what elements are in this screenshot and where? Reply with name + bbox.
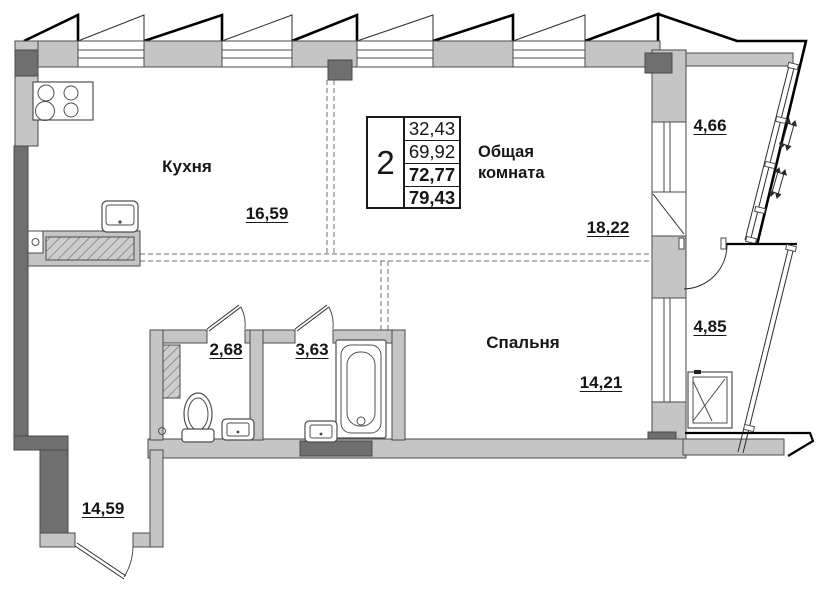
- bathroom-sink-icon: [305, 421, 337, 442]
- facade-sawtooth-windows: [24, 14, 658, 41]
- exterior-wall-top: [15, 41, 660, 80]
- room-area-balcony-upper: 4,66: [693, 116, 726, 136]
- rooms-count: 2: [368, 118, 405, 207]
- room-area-bedroom: 14,21: [580, 373, 623, 393]
- room-area-balcony-lower: 4,85: [693, 317, 726, 337]
- balcony-divider-door: [679, 238, 797, 289]
- bathtub-icon: [336, 340, 386, 438]
- wc-sink-icon: [222, 419, 254, 440]
- room-label-bedroom: Спальня: [486, 333, 559, 353]
- wc-door: [207, 305, 245, 331]
- exterior-wall-bottom: [148, 439, 686, 458]
- entrance-door: [75, 543, 133, 579]
- kitchen-sink-icon: [102, 201, 138, 232]
- balcony-lower: [683, 244, 813, 456]
- info-table: 2 32,43 69,92 72,77 79,43: [366, 116, 461, 209]
- stove-icon: [33, 82, 93, 121]
- info-table-areas: 32,43 69,92 72,77 79,43: [405, 118, 459, 207]
- room-area-living-room: 18,22: [587, 218, 630, 238]
- area-row-3: 72,77: [405, 164, 459, 187]
- area-row-4: 79,43: [405, 187, 459, 209]
- kitchen-counter: [28, 231, 140, 266]
- balcony-window-icon: [688, 370, 732, 428]
- toilet-icon: [159, 393, 215, 442]
- room-area-hallway: 14,59: [82, 499, 125, 519]
- area-row-2: 69,92: [405, 141, 459, 164]
- room-area-kitchen: 16,59: [246, 204, 289, 224]
- room-area-wc: 2,68: [209, 340, 242, 360]
- exterior-wall-right: [645, 50, 686, 458]
- room-label-kitchen: Кухня: [162, 157, 212, 177]
- area-row-1: 32,43: [405, 118, 459, 141]
- wc-vent-duct: [163, 345, 180, 398]
- floor-plan: 2 32,43 69,92 72,77 79,43 Кухня 16,59 Об…: [0, 0, 828, 593]
- room-area-bathroom: 3,63: [295, 340, 328, 360]
- bathroom-door: [295, 305, 333, 331]
- room-label-living-room: Общая комната: [478, 142, 570, 184]
- window-opening-arrows: [771, 119, 795, 198]
